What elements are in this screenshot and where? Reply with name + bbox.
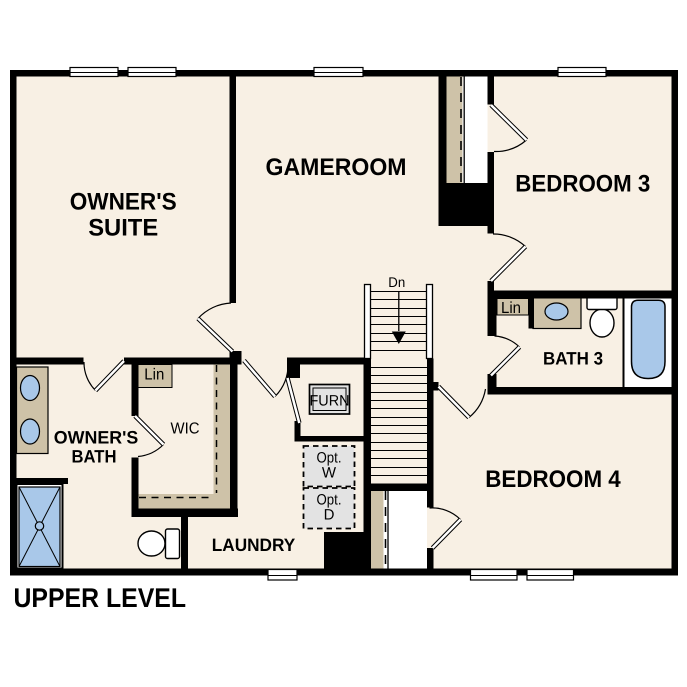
svg-text:OWNER'S: OWNER'S xyxy=(70,189,177,216)
svg-text:OWNER'S: OWNER'S xyxy=(54,428,139,448)
svg-text:Lin: Lin xyxy=(501,300,521,317)
svg-text:GAMEROOM: GAMEROOM xyxy=(266,154,407,181)
svg-text:BATH 3: BATH 3 xyxy=(543,349,603,369)
svg-text:BEDROOM 4: BEDROOM 4 xyxy=(485,466,621,493)
svg-text:SUITE: SUITE xyxy=(88,215,158,242)
svg-text:BEDROOM 3: BEDROOM 3 xyxy=(515,171,650,198)
svg-text:WIC: WIC xyxy=(171,421,200,438)
svg-text:LAUNDRY: LAUNDRY xyxy=(212,535,296,555)
svg-text:Dn: Dn xyxy=(388,274,405,290)
svg-text:D: D xyxy=(324,507,335,524)
svg-text:W: W xyxy=(322,465,337,482)
svg-text:UPPER LEVEL: UPPER LEVEL xyxy=(14,583,187,613)
svg-text:Lin: Lin xyxy=(144,367,164,384)
svg-text:BATH: BATH xyxy=(72,447,117,467)
svg-text:FURN: FURN xyxy=(310,393,350,410)
